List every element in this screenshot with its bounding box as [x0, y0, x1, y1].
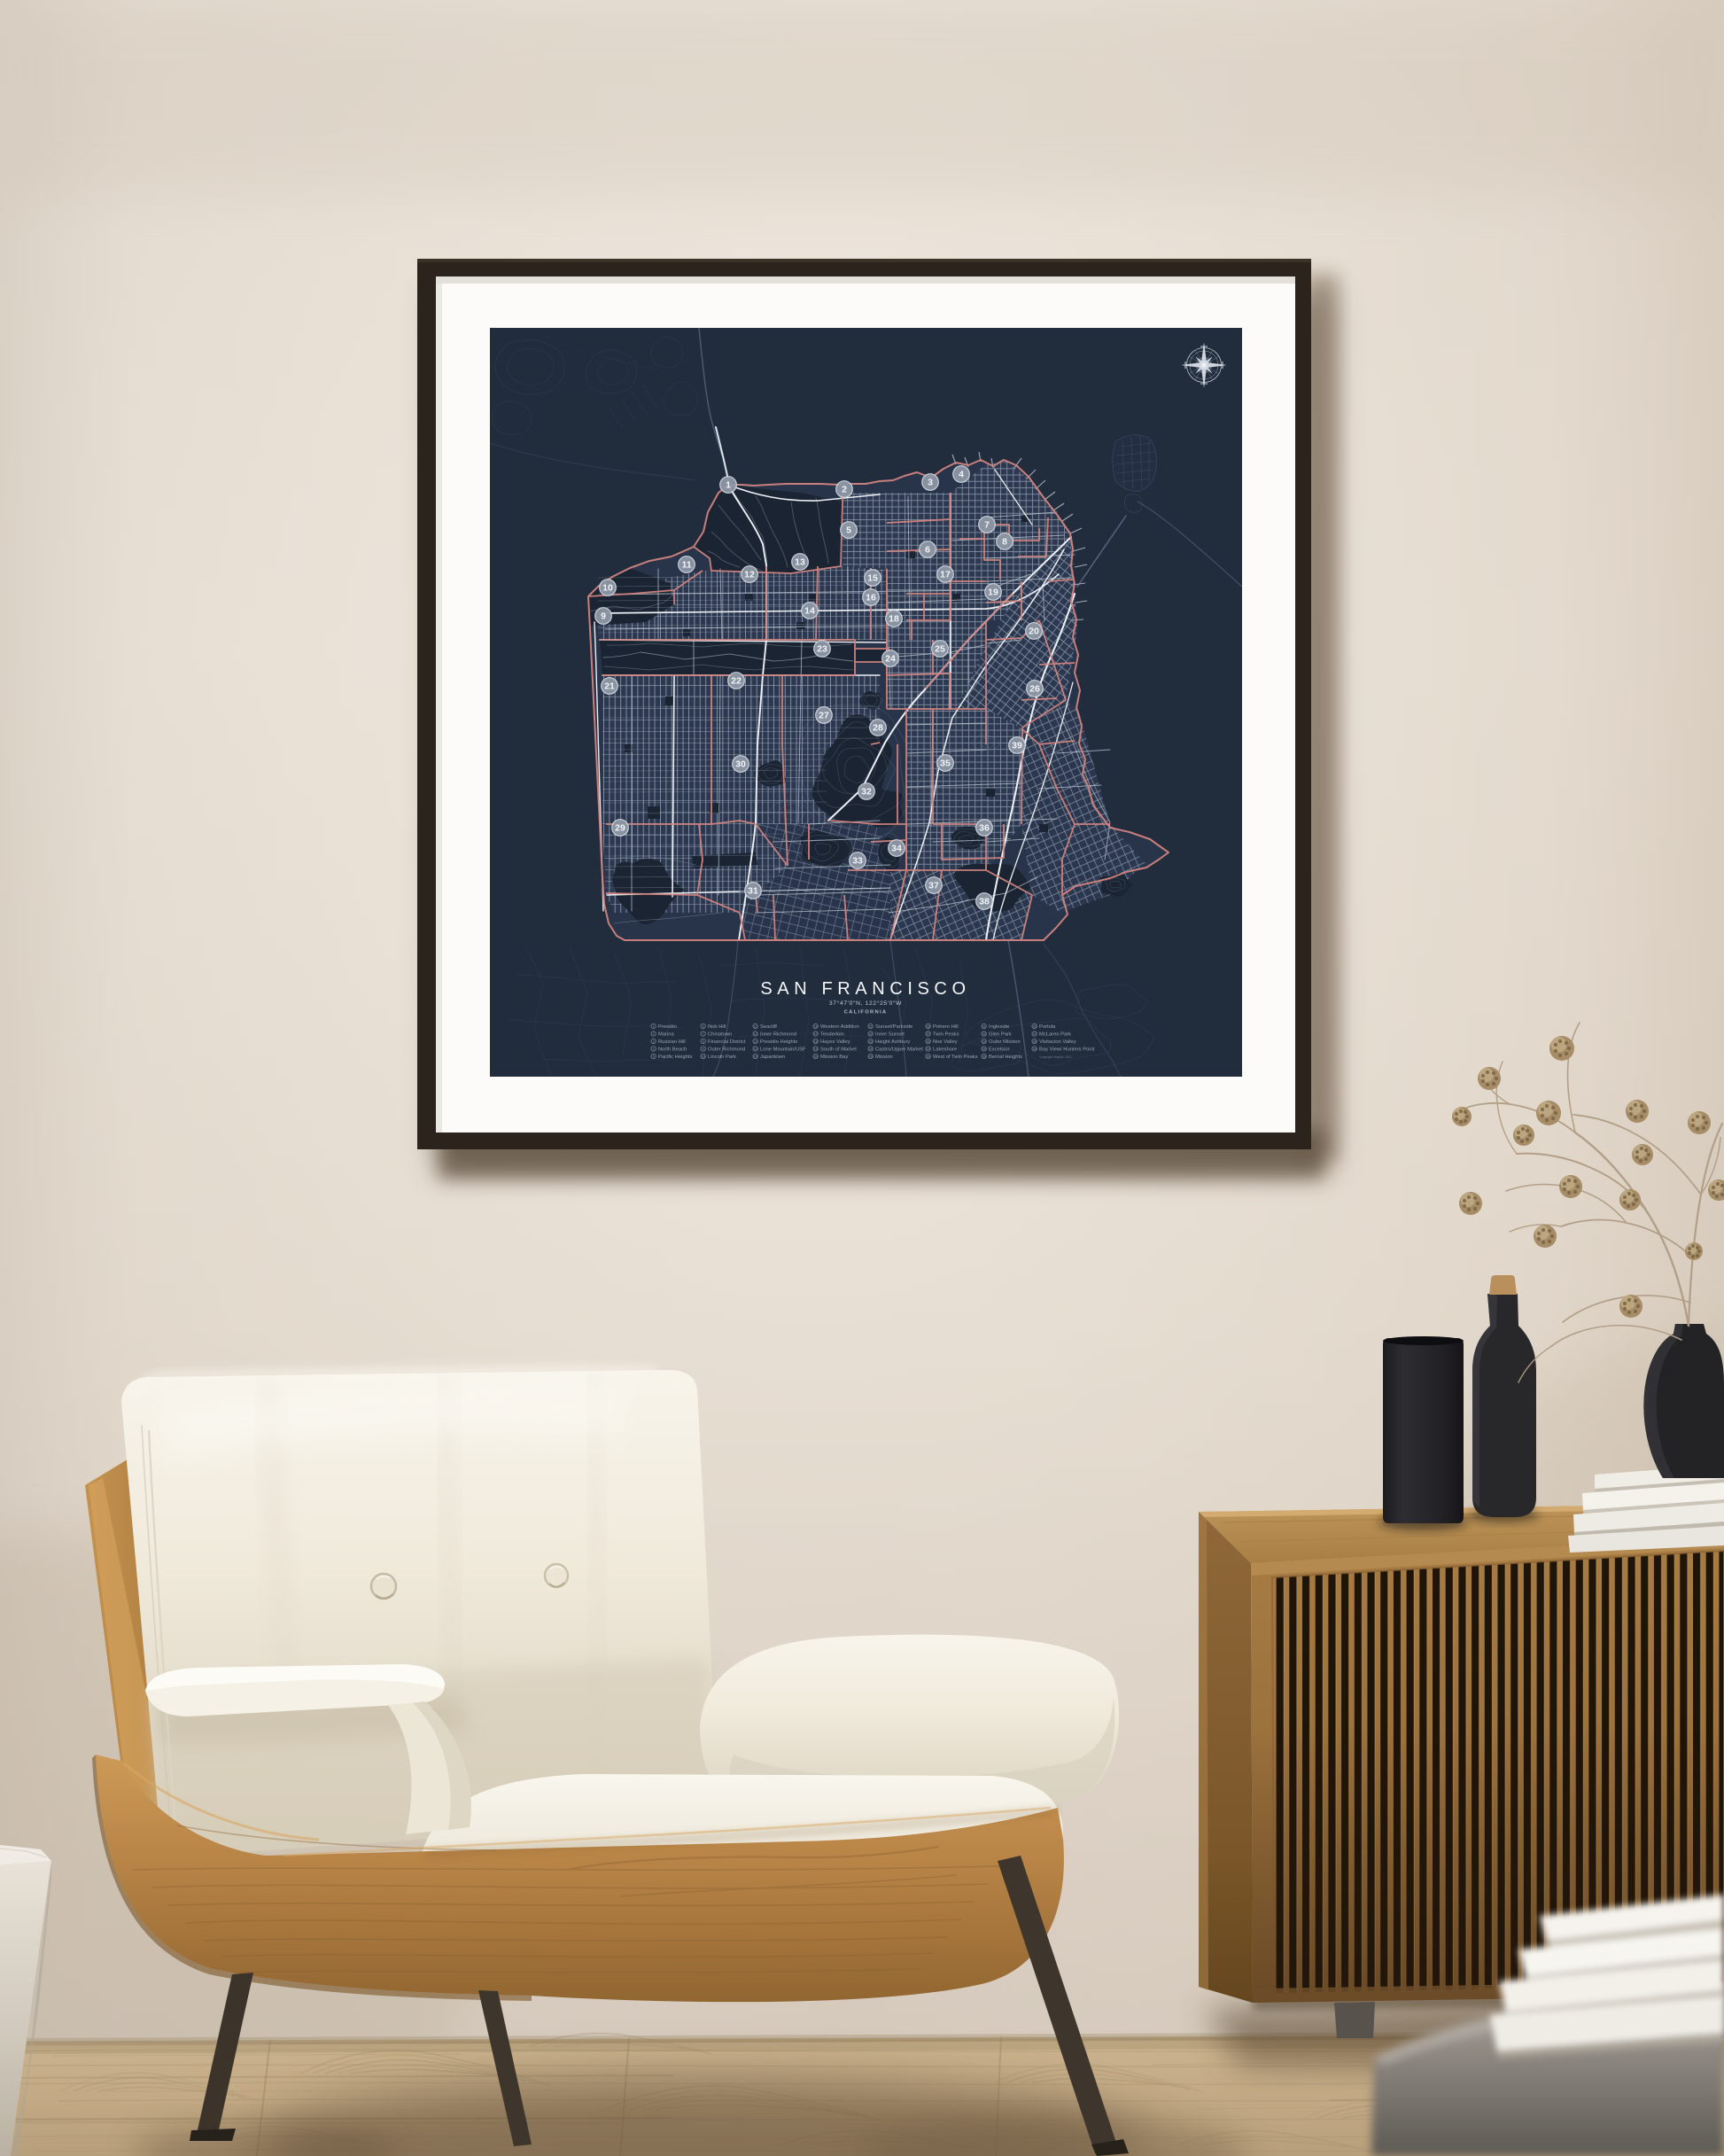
svg-text:Glen Park: Glen Park [989, 1032, 1012, 1038]
svg-text:3: 3 [653, 1039, 655, 1043]
svg-text:18: 18 [889, 614, 899, 625]
svg-text:Lakeshore: Lakeshore [933, 1047, 957, 1053]
svg-text:34: 34 [891, 844, 902, 854]
svg-text:Inner Sunset: Inner Sunset [875, 1032, 905, 1038]
svg-text:5: 5 [653, 1055, 655, 1058]
svg-text:Mission: Mission [875, 1055, 893, 1060]
svg-text:Outer Mission: Outer Mission [989, 1039, 1021, 1045]
svg-text:37: 37 [928, 881, 939, 891]
svg-text:17: 17 [814, 1032, 818, 1036]
svg-text:5: 5 [846, 525, 851, 536]
svg-text:Lone Mountain/USF: Lone Mountain/USF [760, 1047, 806, 1053]
svg-text:29: 29 [927, 1047, 930, 1051]
svg-text:10: 10 [702, 1055, 705, 1058]
svg-text:6: 6 [925, 545, 930, 556]
svg-text:Mission Bay: Mission Bay [820, 1055, 848, 1060]
svg-text:8: 8 [703, 1039, 704, 1043]
svg-text:33: 33 [982, 1039, 986, 1043]
svg-text:18: 18 [814, 1039, 818, 1043]
svg-text:9: 9 [703, 1047, 704, 1051]
svg-text:38: 38 [1033, 1039, 1037, 1043]
svg-text:Presidio Heights: Presidio Heights [760, 1039, 797, 1045]
svg-text:19: 19 [988, 588, 998, 598]
svg-text:37°47'0"N, 122°25'0"W: 37°47'0"N, 122°25'0"W [829, 1000, 902, 1007]
svg-text:22: 22 [731, 676, 742, 687]
svg-text:23: 23 [817, 644, 827, 655]
svg-text:West of Twin Peaks: West of Twin Peaks [933, 1055, 978, 1060]
svg-text:37: 37 [1033, 1032, 1037, 1036]
svg-text:Bernal Heights: Bernal Heights [989, 1055, 1022, 1060]
svg-text:15: 15 [754, 1055, 757, 1058]
svg-text:2: 2 [653, 1032, 655, 1036]
svg-text:Financial District: Financial District [708, 1039, 746, 1045]
svg-text:25: 25 [869, 1055, 873, 1058]
svg-text:10: 10 [602, 583, 613, 594]
svg-text:24: 24 [885, 654, 896, 665]
svg-text:Japantown: Japantown [760, 1055, 785, 1060]
svg-text:25: 25 [935, 644, 945, 655]
svg-text:26: 26 [927, 1024, 930, 1028]
svg-text:Portola: Portola [1039, 1024, 1056, 1030]
svg-text:26: 26 [1029, 684, 1040, 695]
svg-text:33: 33 [852, 856, 863, 867]
svg-text:11: 11 [681, 560, 691, 571]
svg-text:32: 32 [861, 787, 872, 798]
svg-text:SAN FRANCISCO: SAN FRANCISCO [760, 979, 970, 999]
svg-text:20: 20 [814, 1055, 818, 1058]
svg-text:11: 11 [754, 1024, 757, 1028]
svg-text:28: 28 [873, 723, 883, 734]
svg-text:CALIFORNIA: CALIFORNIA [844, 1010, 888, 1016]
svg-text:34: 34 [982, 1047, 986, 1051]
svg-text:7: 7 [984, 520, 990, 531]
svg-text:21: 21 [604, 681, 615, 692]
svg-text:39: 39 [1033, 1047, 1037, 1051]
svg-text:Bay View/ Hunters Point: Bay View/ Hunters Point [1039, 1047, 1095, 1053]
svg-text:16: 16 [814, 1024, 818, 1028]
svg-text:13: 13 [754, 1039, 757, 1043]
svg-text:22: 22 [869, 1032, 873, 1036]
svg-text:20: 20 [1029, 627, 1039, 637]
svg-text:Potrero Hill: Potrero Hill [933, 1024, 959, 1030]
svg-text:8: 8 [1002, 537, 1007, 548]
svg-text:9: 9 [601, 611, 606, 622]
svg-text:14: 14 [804, 606, 815, 617]
svg-text:31: 31 [748, 886, 758, 897]
svg-text:31: 31 [982, 1024, 986, 1028]
svg-text:19: 19 [814, 1047, 818, 1051]
svg-text:6: 6 [703, 1024, 704, 1028]
svg-text:Hayes Valley: Hayes Valley [820, 1039, 850, 1045]
svg-text:Twin Peaks: Twin Peaks [933, 1032, 959, 1038]
svg-text:Lincoln Park: Lincoln Park [708, 1055, 736, 1060]
svg-text:Castro/Upper Market: Castro/Upper Market [875, 1047, 923, 1053]
svg-text:32: 32 [982, 1032, 986, 1036]
svg-text:Pacific Heights: Pacific Heights [658, 1055, 692, 1060]
svg-text:Marina: Marina [658, 1032, 674, 1038]
svg-text:27: 27 [927, 1032, 930, 1036]
svg-text:1: 1 [653, 1024, 655, 1028]
svg-text:Russian Hill: Russian Hill [658, 1039, 686, 1045]
svg-text:12: 12 [744, 570, 755, 580]
svg-text:Tenderloin: Tenderloin [820, 1032, 844, 1038]
svg-text:17: 17 [940, 570, 951, 580]
svg-text:3: 3 [928, 478, 933, 488]
svg-text:Outer Richmond: Outer Richmond [708, 1047, 745, 1053]
svg-text:Sunset/Parkside: Sunset/Parkside [875, 1024, 912, 1030]
svg-text:7: 7 [703, 1032, 704, 1036]
svg-text:Western Addition: Western Addition [820, 1024, 859, 1030]
svg-text:2: 2 [842, 485, 847, 495]
svg-text:35: 35 [982, 1055, 986, 1058]
svg-text:4: 4 [959, 470, 964, 480]
svg-text:16: 16 [866, 593, 876, 603]
svg-text:36: 36 [1033, 1024, 1037, 1028]
svg-text:27: 27 [819, 711, 829, 721]
svg-text:23: 23 [869, 1039, 873, 1043]
svg-text:Inner Richmond: Inner Richmond [760, 1032, 796, 1038]
svg-text:Ingleside: Ingleside [989, 1024, 1009, 1030]
svg-text:McLaren Park: McLaren Park [1039, 1032, 1071, 1038]
svg-text:Excelsior: Excelsior [989, 1047, 1010, 1053]
svg-text:12: 12 [754, 1032, 757, 1036]
svg-text:Haight Ashbury: Haight Ashbury [875, 1039, 910, 1045]
svg-text:36: 36 [979, 823, 990, 834]
svg-text:39: 39 [1012, 741, 1022, 751]
svg-text:Nob Hill: Nob Hill [708, 1024, 726, 1030]
svg-text:29: 29 [615, 823, 625, 834]
svg-text:Chinatown: Chinatown [708, 1032, 732, 1038]
svg-text:4: 4 [653, 1047, 655, 1051]
svg-text:Seacliff: Seacliff [760, 1024, 777, 1030]
svg-text:15: 15 [867, 573, 878, 584]
svg-text:21: 21 [869, 1024, 873, 1028]
svg-text:28: 28 [927, 1039, 930, 1043]
svg-text:38: 38 [979, 897, 990, 907]
svg-text:30: 30 [927, 1055, 930, 1058]
svg-text:24: 24 [869, 1047, 873, 1051]
svg-text:Noe Valley: Noe Valley [933, 1039, 958, 1045]
svg-text:14: 14 [754, 1047, 757, 1051]
svg-text:North Beach: North Beach [658, 1047, 687, 1053]
svg-text:Copyright Mapiful 2021: Copyright Mapiful 2021 [1039, 1055, 1072, 1059]
svg-text:35: 35 [940, 759, 951, 769]
svg-text:South of Market: South of Market [820, 1047, 857, 1053]
svg-text:Visitacion Valley: Visitacion Valley [1039, 1039, 1076, 1045]
svg-text:1: 1 [726, 480, 731, 491]
svg-text:Presidio: Presidio [658, 1024, 677, 1030]
svg-text:30: 30 [735, 759, 746, 770]
svg-text:13: 13 [795, 557, 805, 568]
